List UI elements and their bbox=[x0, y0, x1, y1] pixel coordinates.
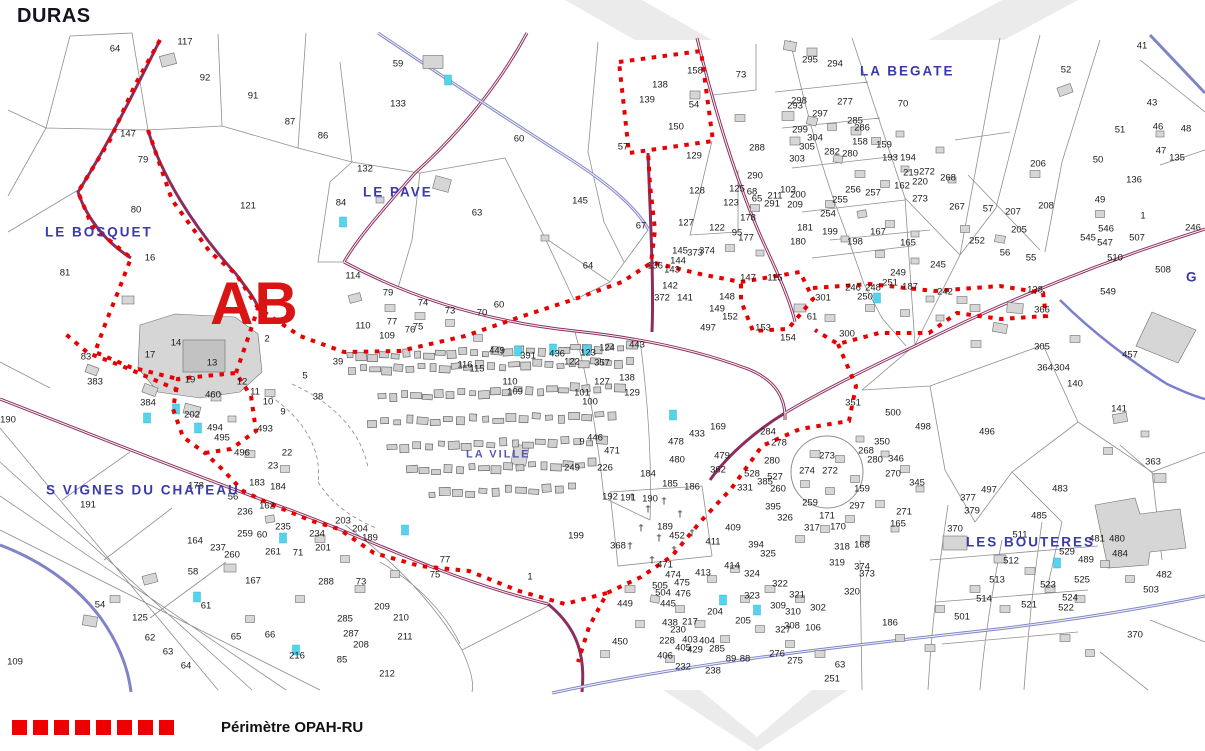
parcel-number: 449 bbox=[489, 346, 505, 356]
parcel-number: 73 bbox=[445, 306, 456, 316]
parcel-number: 136 bbox=[1126, 175, 1142, 185]
parcel-number: 273 bbox=[819, 451, 835, 461]
place-name-label: LA BEGATE bbox=[860, 64, 955, 78]
parcel-number: 235 bbox=[275, 522, 291, 532]
parcel-number: 136 bbox=[647, 261, 663, 271]
parcel-number: 246 bbox=[845, 283, 861, 293]
parcel-number: 147 bbox=[120, 129, 136, 139]
parcel-number: 162 bbox=[894, 181, 910, 191]
parcel-number: 248 bbox=[865, 283, 881, 293]
parcel-number: 109 bbox=[507, 387, 523, 397]
parcel-number: 10 bbox=[263, 397, 274, 407]
parcel-number: 507 bbox=[1129, 233, 1145, 243]
parcel-number: 19 bbox=[185, 375, 196, 385]
parcel-number: 301 bbox=[815, 293, 831, 303]
place-name-label: LE BOSQUET bbox=[45, 225, 153, 239]
parcel-number: 291 bbox=[764, 199, 780, 209]
parcel-number: 61 bbox=[201, 601, 212, 611]
parcel-number: 150 bbox=[668, 122, 684, 132]
parcel-number: 285 bbox=[337, 614, 353, 624]
parcel-number: 546 bbox=[1098, 224, 1114, 234]
parcel-number: 449 bbox=[617, 599, 633, 609]
parcel-number: 514 bbox=[976, 594, 992, 604]
parcel-number: 446 bbox=[587, 433, 603, 443]
parcel-number: 254 bbox=[820, 209, 836, 219]
parcel-number: 60 bbox=[257, 530, 268, 540]
parcel-number: 73 bbox=[356, 577, 367, 587]
parcel-number: 141 bbox=[677, 293, 693, 303]
parcel-number: 523 bbox=[1040, 580, 1056, 590]
parcel-number: 280 bbox=[764, 456, 780, 466]
parcel-number: 43 bbox=[1147, 98, 1158, 108]
parcel-number: 500 bbox=[885, 408, 901, 418]
parcel-number: 51 bbox=[1115, 125, 1126, 135]
parcel-number: 326 bbox=[777, 513, 793, 523]
parcel-number: 259 bbox=[802, 498, 818, 508]
parcel-number: 66 bbox=[265, 630, 276, 640]
parcel-number: 324 bbox=[744, 569, 760, 579]
parcel-number: 288 bbox=[318, 577, 334, 587]
parcel-number: 181 bbox=[797, 223, 813, 233]
svg-text:†: † bbox=[650, 555, 655, 566]
parcel-number: 84 bbox=[336, 198, 347, 208]
parcel-number: 238 bbox=[705, 666, 721, 676]
parcel-number: 414 bbox=[724, 561, 740, 571]
place-name-label: LA VILLE bbox=[466, 450, 530, 461]
parcel-number: 5 bbox=[302, 371, 307, 381]
parcel-number: 489 bbox=[1078, 555, 1094, 565]
cadastral-map: †††††††††† 64117929187861477980121168183… bbox=[0, 0, 1205, 751]
parcel-number: 89 bbox=[726, 654, 737, 664]
parcel-number: 303 bbox=[789, 154, 805, 164]
place-name-label: S VIGNES DU CHATEAU bbox=[46, 483, 240, 497]
parcel-number: 305 bbox=[799, 142, 815, 152]
parcel-number: 9 bbox=[280, 407, 285, 417]
parcel-number: 479 bbox=[714, 451, 730, 461]
page: †††††††††† 64117929187861477980121168183… bbox=[0, 0, 1205, 751]
parcel-number: 457 bbox=[1122, 350, 1138, 360]
parcel-number: 385 bbox=[757, 477, 773, 487]
parcel-number: 287 bbox=[343, 629, 359, 639]
parcel-number: 70 bbox=[898, 99, 909, 109]
parcel-number: 549 bbox=[1100, 287, 1116, 297]
parcel-number: 185 bbox=[662, 479, 678, 489]
parcel-number: 232 bbox=[675, 662, 691, 672]
place-name-label: LE PAVE bbox=[363, 185, 433, 199]
parcel-number: 49 bbox=[1095, 195, 1106, 205]
parcel-number: 153 bbox=[755, 323, 771, 333]
parcel-number: 443 bbox=[629, 340, 645, 350]
parcel-number: 132 bbox=[357, 164, 373, 174]
parcel-number: 148 bbox=[719, 292, 735, 302]
parcel-number: 245 bbox=[930, 260, 946, 270]
legend-label: Périmètre OPAH-RU bbox=[221, 719, 363, 736]
parcel-number: 159 bbox=[854, 484, 870, 494]
parcel-number: 56 bbox=[1000, 248, 1011, 258]
parcel-number: 168 bbox=[854, 540, 870, 550]
parcel-number: 79 bbox=[138, 155, 149, 165]
parcel-number: 192 bbox=[602, 492, 618, 502]
parcel-number: 65 bbox=[231, 632, 242, 642]
parcel-number: 209 bbox=[374, 602, 390, 612]
parcel-number: 13 bbox=[207, 358, 218, 368]
page-title: DURAS bbox=[17, 5, 91, 28]
parcel-number: 202 bbox=[184, 410, 200, 420]
legend-perimeter-swatch bbox=[96, 720, 111, 735]
parcel-number: 125 bbox=[132, 613, 148, 623]
parcel-number: 50 bbox=[1093, 155, 1104, 165]
parcel-number: 362 bbox=[710, 465, 726, 475]
parcel-number: 135 bbox=[1169, 153, 1185, 163]
parcel-number: 205 bbox=[735, 616, 751, 626]
parcel-number: 504 bbox=[655, 588, 671, 598]
parcel-number: 346 bbox=[888, 454, 904, 464]
parcel-number: 391 bbox=[520, 351, 536, 361]
parcel-number: 186 bbox=[882, 618, 898, 628]
parcel-number: 482 bbox=[1156, 570, 1172, 580]
parcel-number: 41 bbox=[1137, 41, 1148, 51]
parcel-number: 75 bbox=[430, 570, 441, 580]
parcel-number: 167 bbox=[245, 576, 261, 586]
parcel-number: 162 bbox=[259, 501, 275, 511]
parcel-number: 64 bbox=[110, 44, 121, 54]
parcel-number: 199 bbox=[568, 531, 584, 541]
parcel-number: 476 bbox=[675, 589, 691, 599]
parcel-number: 47 bbox=[1156, 146, 1167, 156]
svg-text:†: † bbox=[657, 533, 662, 544]
parcel-number: 16 bbox=[145, 253, 156, 263]
parcel-number: 495 bbox=[214, 433, 230, 443]
parcel-number: 256 bbox=[845, 185, 861, 195]
parcel-number: 115 bbox=[469, 364, 484, 374]
parcel-number: 103 bbox=[780, 185, 796, 195]
parcel-number: 261 bbox=[265, 547, 281, 557]
parcel-number: 483 bbox=[1052, 484, 1068, 494]
parcel-number: 63 bbox=[163, 647, 174, 657]
parcel-number: 208 bbox=[1038, 201, 1054, 211]
parcel-number: 54 bbox=[95, 600, 106, 610]
parcel-number: 545 bbox=[1080, 233, 1096, 243]
parcel-number: 70 bbox=[477, 308, 488, 318]
parcel-number: 142 bbox=[662, 281, 678, 291]
parcel-number: 141 bbox=[1111, 404, 1127, 414]
parcel-number: 249 bbox=[564, 463, 580, 473]
parcel-number: 286 bbox=[854, 123, 870, 133]
parcel-number: 143 bbox=[664, 265, 680, 275]
parcel-number: 139 bbox=[639, 95, 655, 105]
parcel-number: 204 bbox=[707, 607, 723, 617]
parcel-number: 363 bbox=[1145, 457, 1161, 467]
legend-perimeter-swatches bbox=[12, 720, 174, 735]
parcel-number: 170 bbox=[830, 522, 846, 532]
parcel-number: 321 bbox=[789, 590, 805, 600]
parcel-number: 115 bbox=[767, 273, 782, 283]
parcel-number: 445 bbox=[660, 599, 676, 609]
parcel-number: 80 bbox=[131, 205, 142, 215]
parcel-number: 122 bbox=[709, 223, 725, 233]
parcel-number: 109 bbox=[379, 331, 395, 341]
parcel-number: 255 bbox=[832, 195, 848, 205]
parcel-number: 406 bbox=[657, 651, 673, 661]
legend: Périmètre OPAH-RU bbox=[12, 714, 363, 740]
svg-text:†: † bbox=[678, 509, 683, 520]
parcel-number: 22 bbox=[282, 448, 293, 458]
parcel-number: 497 bbox=[981, 485, 997, 495]
parcel-number: 11 bbox=[250, 387, 260, 397]
parcel-number: 140 bbox=[1067, 379, 1083, 389]
parcel-number: 370 bbox=[1127, 630, 1143, 640]
parcel-number: 177 bbox=[738, 233, 754, 243]
parcel-number: 46 bbox=[1153, 122, 1164, 132]
parcel-number: 63 bbox=[472, 208, 483, 218]
parcel-number: 318 bbox=[834, 542, 850, 552]
parcel-number: 190 bbox=[642, 494, 658, 504]
parcel-number: 297 bbox=[812, 109, 828, 119]
parcel-number: 48 bbox=[1181, 124, 1192, 134]
parcel-number: 121 bbox=[240, 201, 256, 211]
parcel-number: 60 bbox=[514, 134, 525, 144]
parcel-number: 59 bbox=[393, 59, 404, 69]
parcel-number: 497 bbox=[700, 323, 716, 333]
parcel-number: 525 bbox=[1074, 575, 1090, 585]
svg-text:†: † bbox=[639, 523, 644, 534]
parcel-number: 411 bbox=[705, 537, 720, 547]
parcel-number: 485 bbox=[1031, 511, 1047, 521]
parcel-number: 436 bbox=[549, 349, 565, 359]
parcel-number: 294 bbox=[827, 59, 843, 69]
parcel-number: 58 bbox=[188, 567, 199, 577]
parcel-number: 475 bbox=[674, 578, 690, 588]
parcel-number: 71 bbox=[293, 548, 304, 558]
parcel-number: 246 bbox=[1185, 223, 1201, 233]
legend-perimeter-swatch bbox=[12, 720, 27, 735]
parcel-number: 309 bbox=[770, 601, 786, 611]
parcel-number: 211 bbox=[397, 632, 412, 642]
parcel-number: 547 bbox=[1097, 238, 1113, 248]
svg-text:†: † bbox=[646, 504, 651, 515]
parcel-number: 480 bbox=[1109, 534, 1125, 544]
parcel-number: 91 bbox=[248, 91, 259, 101]
parcel-number: 64 bbox=[583, 261, 594, 271]
parcel-number: 293 bbox=[787, 101, 803, 111]
parcel-number: 117 bbox=[177, 37, 192, 47]
parcel-number: 85 bbox=[337, 655, 348, 665]
parcel-number: 1 bbox=[527, 572, 532, 582]
parcel-number: 86 bbox=[318, 131, 329, 141]
parcel-number: 165 bbox=[890, 519, 906, 529]
parcel-number: 147 bbox=[740, 273, 756, 283]
legend-perimeter-swatch bbox=[159, 720, 174, 735]
legend-perimeter-swatch bbox=[117, 720, 132, 735]
parcel-number: 180 bbox=[790, 237, 806, 247]
legend-perimeter-swatch bbox=[75, 720, 90, 735]
parcel-number: 209 bbox=[787, 200, 803, 210]
parcel-number: 395 bbox=[765, 502, 781, 512]
parcel-number: 251 bbox=[882, 278, 898, 288]
parcel-number: 377 bbox=[960, 493, 976, 503]
parcel-number: 521 bbox=[1021, 600, 1037, 610]
parcel-number: 138 bbox=[619, 373, 635, 383]
parcel-number: 77 bbox=[387, 317, 398, 327]
parcel-number: 282 bbox=[824, 147, 840, 157]
parcel-number: 194 bbox=[900, 153, 916, 163]
parcel-number: 138 bbox=[1027, 285, 1043, 295]
parcel-number: 129 bbox=[686, 151, 702, 161]
parcel-number: 325 bbox=[760, 549, 776, 559]
parcel-number: 128 bbox=[689, 186, 705, 196]
parcel-number: 368 bbox=[610, 541, 626, 551]
parcel-number: 65 bbox=[752, 194, 763, 204]
parcel-number: 345 bbox=[909, 478, 925, 488]
parcel-number: 87 bbox=[285, 117, 296, 127]
parcel-number: 206 bbox=[1030, 159, 1046, 169]
parcel-number: 379 bbox=[964, 506, 980, 516]
parcel-number: 413 bbox=[695, 568, 711, 578]
parcel-number: 297 bbox=[849, 501, 865, 511]
svg-text:†: † bbox=[628, 541, 633, 552]
parcel-number: 74 bbox=[418, 298, 429, 308]
parcel-number: 510 bbox=[1107, 253, 1123, 263]
parcel-number: 299 bbox=[792, 125, 808, 135]
parcel-number: 288 bbox=[749, 143, 765, 153]
parcel-number: 364 bbox=[1037, 363, 1053, 373]
parcel-number: 478 bbox=[668, 437, 684, 447]
parcel-number: 158 bbox=[687, 66, 703, 76]
parcel-number: 9 bbox=[579, 437, 584, 447]
parcel-number: 123 bbox=[723, 198, 739, 208]
parcel-number: 122 bbox=[564, 357, 580, 367]
parcel-number: 384 bbox=[140, 398, 156, 408]
parcel-number: 12 bbox=[237, 377, 248, 387]
parcel-number: 493 bbox=[257, 424, 273, 434]
parcel-number: 320 bbox=[844, 587, 860, 597]
legend-perimeter-swatch bbox=[54, 720, 69, 735]
parcel-number: 452 bbox=[669, 531, 685, 541]
parcel-number: 322 bbox=[772, 579, 788, 589]
parcel-number: 17 bbox=[145, 350, 156, 360]
parcel-number: 138 bbox=[652, 80, 668, 90]
parcel-number: 184 bbox=[640, 469, 656, 479]
parcel-number: 178 bbox=[740, 213, 756, 223]
parcel-number: 100 bbox=[582, 397, 598, 407]
parcel-number: 271 bbox=[896, 507, 912, 517]
parcel-number: 79 bbox=[383, 288, 394, 298]
parcel-number: 275 bbox=[787, 656, 803, 666]
parcel-number: 1 bbox=[1140, 211, 1145, 221]
parcel-number: 220 bbox=[912, 177, 928, 187]
parcel-number: 270 bbox=[885, 469, 901, 479]
parcel-number: 409 bbox=[725, 523, 741, 533]
parcel-number: 373 bbox=[859, 569, 875, 579]
parcel-number: 201 bbox=[315, 543, 331, 553]
parcel-number: 127 bbox=[678, 218, 694, 228]
parcel-number: 110 bbox=[355, 321, 370, 331]
parcel-number: 190 bbox=[0, 415, 16, 425]
parcel-number: 317 bbox=[804, 523, 820, 533]
parcel-number: 300 bbox=[839, 329, 855, 339]
parcel-number: 259 bbox=[237, 529, 253, 539]
parcel-number: 109 bbox=[7, 657, 23, 667]
parcel-number: 228 bbox=[659, 636, 675, 646]
parcel-number: 199 bbox=[822, 227, 838, 237]
parcel-number: 106 bbox=[805, 623, 821, 633]
parcel-number: 133 bbox=[390, 99, 406, 109]
parcel-number: 169 bbox=[710, 422, 726, 432]
parcel-number: 302 bbox=[810, 603, 826, 613]
parcel-number: 284 bbox=[760, 427, 776, 437]
parcel-number: 501 bbox=[954, 612, 970, 622]
parcel-number: 67 bbox=[636, 221, 647, 231]
parcel-number: 331 bbox=[737, 483, 753, 493]
parcel-number: 114 bbox=[345, 271, 360, 281]
parcel-number: 357 bbox=[594, 358, 610, 368]
parcel-number: 62 bbox=[145, 633, 156, 643]
parcel-number: 216 bbox=[289, 651, 305, 661]
parcel-number: 193 bbox=[882, 153, 898, 163]
legend-perimeter-swatch bbox=[33, 720, 48, 735]
parcel-number: 242 bbox=[937, 287, 953, 297]
parcel-number: 210 bbox=[393, 613, 409, 623]
parcel-number: 39 bbox=[333, 357, 344, 367]
parcel-number: 208 bbox=[353, 640, 369, 650]
parcel-number: 52 bbox=[1061, 65, 1072, 75]
parcel-number: 164 bbox=[187, 536, 203, 546]
parcel-number: 129 bbox=[624, 388, 640, 398]
parcel-number: 88 bbox=[740, 654, 751, 664]
parcel-number: 350 bbox=[874, 437, 890, 447]
parcel-number: 471 bbox=[604, 446, 620, 456]
parcel-number: 77 bbox=[440, 555, 451, 565]
parcel-number: 257 bbox=[865, 188, 881, 198]
parcel-number: 508 bbox=[1155, 265, 1171, 275]
parcel-number: 207 bbox=[1005, 207, 1021, 217]
parcel-number: 23 bbox=[268, 461, 279, 471]
parcel-number: 212 bbox=[379, 669, 395, 679]
parcel-number: 38 bbox=[313, 392, 324, 402]
parcel-number: 513 bbox=[989, 575, 1005, 585]
parcel-number: 276 bbox=[769, 649, 785, 659]
parcel-number: 272 bbox=[822, 466, 838, 476]
parcel-number: 125 bbox=[729, 184, 745, 194]
parcel-number: 171 bbox=[819, 511, 835, 521]
parcel-number: 54 bbox=[689, 100, 700, 110]
parcel-number: 124 bbox=[599, 343, 615, 353]
zone-ab-label: AB bbox=[210, 274, 299, 334]
parcel-number: 522 bbox=[1058, 603, 1074, 613]
parcel-number: 251 bbox=[824, 674, 840, 684]
parcel-number: 280 bbox=[842, 149, 858, 159]
parcel-number: 268 bbox=[940, 173, 956, 183]
parcel-number: 323 bbox=[744, 591, 760, 601]
parcel-number: 57 bbox=[983, 204, 994, 214]
parcel-number: 154 bbox=[780, 333, 796, 343]
parcel-number: 61 bbox=[807, 312, 818, 322]
parcel-number: 512 bbox=[1003, 556, 1019, 566]
parcel-number: 158 bbox=[852, 137, 868, 147]
parcel-number: 14 bbox=[171, 338, 182, 348]
parcel-number: 370 bbox=[947, 524, 963, 534]
parcel-number: 460 bbox=[205, 390, 221, 400]
parcel-number: 184 bbox=[270, 482, 286, 492]
parcel-number: 290 bbox=[747, 171, 763, 181]
parcel-number: 75 bbox=[413, 322, 424, 332]
parcel-number: 278 bbox=[771, 438, 787, 448]
parcel-number: 83 bbox=[81, 352, 92, 362]
parcel-number: 92 bbox=[200, 73, 211, 83]
parcel-number: 277 bbox=[837, 97, 853, 107]
parcel-number: 165 bbox=[900, 238, 916, 248]
parcel-number: 64 bbox=[181, 661, 192, 671]
